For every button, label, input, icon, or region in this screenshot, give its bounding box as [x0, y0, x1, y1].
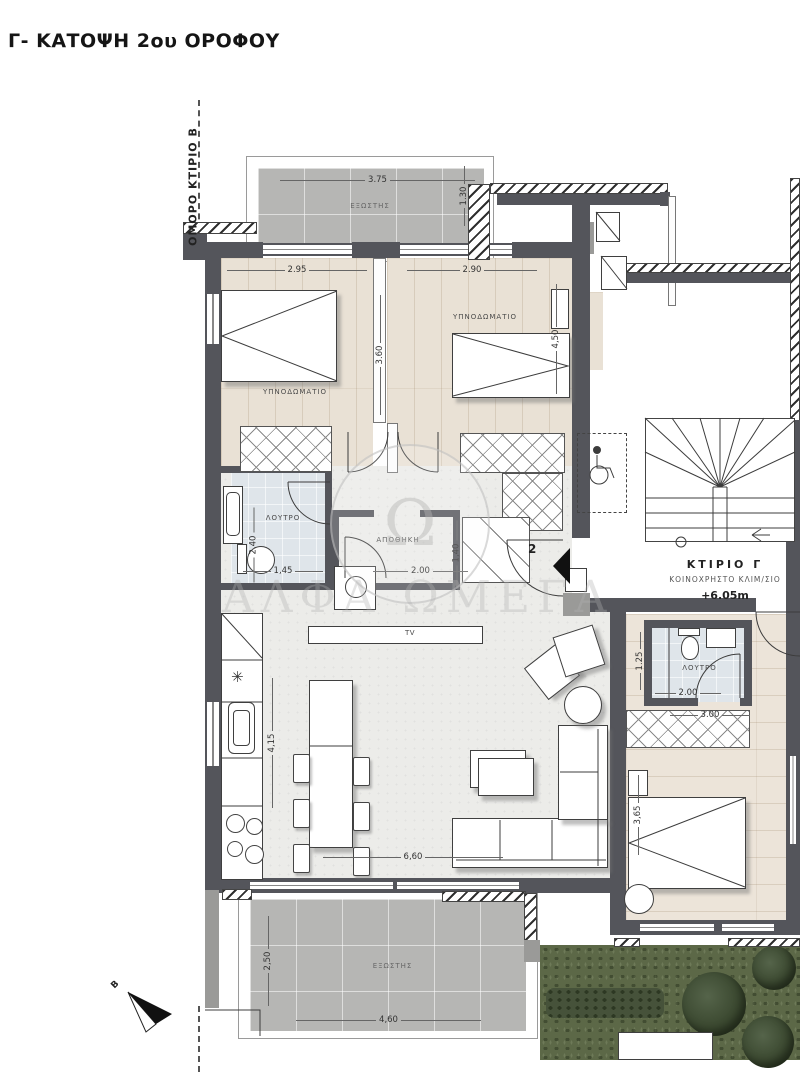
- step-outline: [205, 1010, 260, 1036]
- door-swing: [398, 432, 438, 472]
- dim-bedroom2-depth: 4,50: [551, 284, 561, 394]
- stairwell-level-label: +6.05m: [655, 589, 795, 602]
- stair-treads: [645, 487, 795, 542]
- bed-triangle: [629, 798, 745, 887]
- sofa-lines: [456, 729, 606, 866]
- bedroom2-label: ΥΠΝΟΔΩΜΑΤΙΟ: [430, 313, 540, 321]
- door-swing: [756, 612, 800, 656]
- meter-diagonal: [596, 212, 627, 289]
- dim-balcony-bottom-width: 4,60: [296, 1015, 481, 1025]
- entry-door-number: 2: [528, 542, 536, 556]
- dim-bedroom1-width: 2.95: [227, 265, 367, 275]
- dim-living-width: 6,60: [323, 852, 503, 862]
- dim-wardrobe-width: 3.00: [670, 710, 750, 720]
- stairwell-building-label: ΚΤΙΡΙΟ Γ: [655, 558, 795, 571]
- dim-storage-closet: 1,40: [452, 521, 462, 586]
- storage-label: ΑΠΟΘΗΚΗ: [363, 536, 433, 544]
- stairwell-use-label: ΚΟΙΝΟΧΡΗΣΤΟ ΚΛΙΜ/ΣΙΟ: [640, 575, 800, 584]
- bathroom1-label: ΛΟΥΤΡΟ: [253, 514, 313, 522]
- floor-plan-canvas: Γ- ΚΑΤΟΨΗ 2ου ΟΡΟΦΟΥ ΟΜΟΡΟ ΚΤΙΡΙΟ Β: [0, 0, 800, 1072]
- balcony-bottom-label: ΕΞΩΣΤΗΣ: [350, 962, 435, 970]
- tv-label: TV: [398, 629, 422, 637]
- dim-bedroom1-depth: 3.60: [375, 295, 385, 415]
- fridge-icon: ✳: [231, 668, 244, 686]
- dim-bathroom1-width: 1,45: [243, 566, 323, 576]
- dim-bedroom3-depth: 3,65: [633, 775, 643, 855]
- stair-fan: [645, 418, 795, 487]
- dim-bathroom2-depth: 1.25: [635, 632, 645, 690]
- plan-title: Γ- ΚΑΤΟΨΗ 2ου ΟΡΟΦΟΥ: [8, 30, 280, 52]
- stair-newel: [676, 537, 686, 547]
- north-arrow-icon: [128, 992, 172, 1032]
- dim-balcony-bottom-depth: 2,50: [263, 916, 273, 1006]
- dim-balcony-top-width: 3.75: [280, 175, 475, 185]
- dim-living-depth: 4,15: [267, 678, 277, 808]
- wheelchair-icon: [590, 447, 614, 485]
- door-swing: [348, 432, 388, 472]
- dim-balcony-top-depth: 1.30: [459, 166, 469, 226]
- stair-direction-arrow: [752, 529, 770, 541]
- dim-bedroom2-width: 2.90: [407, 265, 537, 275]
- balcony-top-label: ΕΞΩΣΤΗΣ: [330, 202, 410, 210]
- bed-triangle: [222, 291, 337, 381]
- entry-marker-icon: [553, 548, 570, 584]
- bedroom1-label: ΥΠΝΟΔΩΜΑΤΙΟ: [240, 388, 350, 396]
- bathroom2-label: ΛΟΥΤΡΟ: [672, 664, 727, 672]
- neighbor-building-label: ΟΜΟΡΟ ΚΤΙΡΙΟ Β: [187, 122, 200, 252]
- dim-bathroom2-width: 2.00: [655, 688, 721, 698]
- counter-lines: [221, 614, 263, 806]
